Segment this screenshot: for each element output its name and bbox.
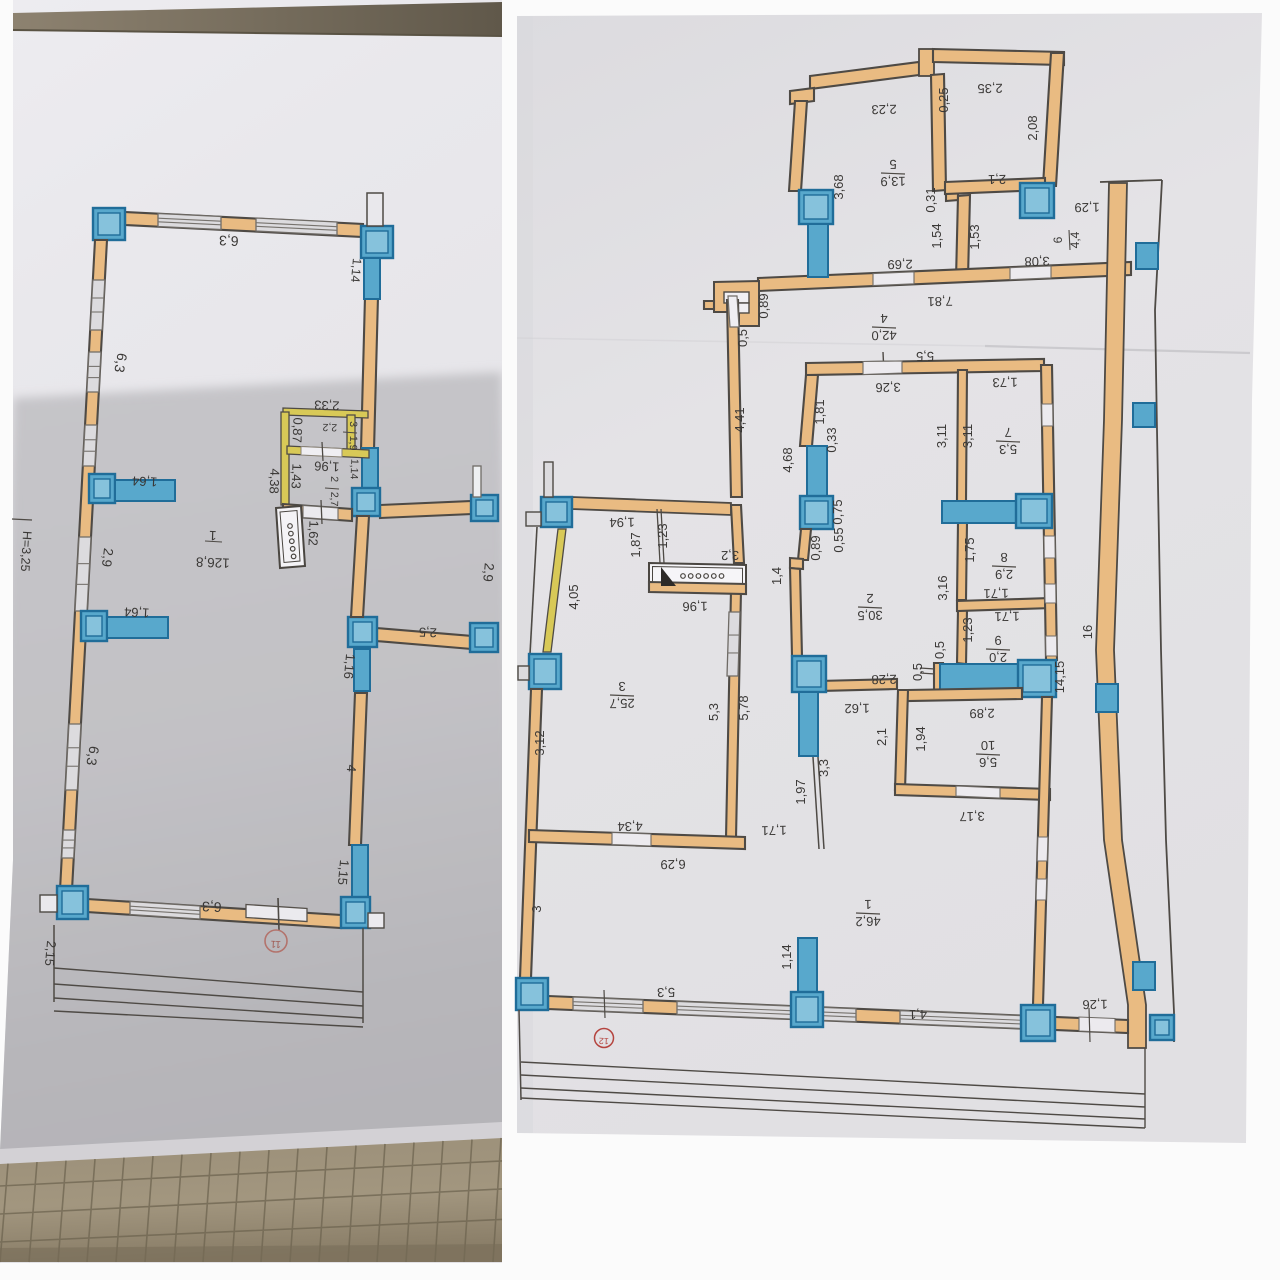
svg-text:2,5: 2,5 bbox=[419, 625, 438, 641]
svg-text:0,89: 0,89 bbox=[808, 535, 823, 560]
svg-text:126,8: 126,8 bbox=[196, 554, 230, 570]
svg-text:2,9: 2,9 bbox=[480, 562, 497, 582]
svg-text:2,69: 2,69 bbox=[887, 257, 913, 272]
svg-text:0,31: 0,31 bbox=[923, 187, 938, 212]
svg-text:2,33: 2,33 bbox=[314, 398, 340, 414]
svg-text:2,1: 2,1 bbox=[988, 172, 1006, 187]
svg-text:1,71: 1,71 bbox=[994, 609, 1020, 624]
svg-text:1,81: 1,81 bbox=[812, 399, 827, 424]
svg-text:1,94: 1,94 bbox=[913, 726, 928, 751]
svg-text:1,15: 1,15 bbox=[335, 859, 352, 886]
svg-text:1: 1 bbox=[864, 897, 871, 912]
svg-text:1,94: 1,94 bbox=[609, 515, 635, 530]
svg-text:4,4: 4,4 bbox=[1068, 231, 1082, 248]
svg-text:1,4: 1,4 bbox=[769, 567, 784, 585]
svg-text:7: 7 bbox=[1004, 425, 1011, 440]
svg-text:5,3: 5,3 bbox=[706, 703, 721, 721]
svg-text:25,7: 25,7 bbox=[609, 696, 635, 711]
svg-text:5,3: 5,3 bbox=[657, 985, 675, 1000]
svg-text:4,68: 4,68 bbox=[780, 447, 795, 472]
svg-text:0,5: 0,5 bbox=[735, 329, 750, 347]
svg-text:5,6: 5,6 bbox=[979, 755, 997, 770]
svg-text:3,11: 3,11 bbox=[934, 424, 949, 448]
svg-text:2,28: 2,28 bbox=[871, 672, 897, 687]
svg-text:2: 2 bbox=[866, 591, 873, 606]
svg-text:3,08: 3,08 bbox=[1024, 254, 1050, 269]
svg-text:1,62: 1,62 bbox=[844, 701, 870, 716]
svg-text:4: 4 bbox=[344, 764, 360, 773]
svg-text:1,9: 1,9 bbox=[347, 436, 360, 451]
svg-text:1,53: 1,53 bbox=[967, 224, 982, 249]
svg-text:7,81: 7,81 bbox=[927, 294, 953, 309]
svg-text:1,54: 1,54 bbox=[929, 223, 944, 248]
svg-text:3,68: 3,68 bbox=[831, 174, 846, 199]
svg-text:1,71: 1,71 bbox=[761, 823, 787, 838]
svg-text:6,29: 6,29 bbox=[660, 857, 686, 872]
svg-text:0,5: 0,5 bbox=[910, 663, 925, 681]
svg-text:0,75: 0,75 bbox=[830, 499, 845, 524]
svg-text:9: 9 bbox=[994, 633, 1001, 648]
svg-text:6: 6 bbox=[1051, 236, 1065, 243]
svg-text:6,3: 6,3 bbox=[219, 233, 239, 250]
svg-text:4,1: 4,1 bbox=[909, 1007, 927, 1022]
svg-text:3,12: 3,12 bbox=[532, 730, 547, 755]
svg-text:1,23: 1,23 bbox=[960, 617, 975, 642]
svg-text:6,3: 6,3 bbox=[202, 899, 222, 916]
svg-text:2: 2 bbox=[328, 476, 340, 482]
svg-text:14,15: 14,15 bbox=[1052, 661, 1067, 694]
svg-text:1,96: 1,96 bbox=[682, 599, 708, 614]
svg-text:1,73: 1,73 bbox=[992, 375, 1018, 390]
svg-text:0,33: 0,33 bbox=[824, 427, 839, 452]
svg-text:1,62: 1,62 bbox=[306, 520, 322, 546]
svg-text:5: 5 bbox=[889, 157, 896, 172]
svg-text:6,3: 6,3 bbox=[111, 352, 130, 374]
svg-text:5,3: 5,3 bbox=[999, 442, 1017, 457]
svg-text:1,14: 1,14 bbox=[348, 258, 364, 284]
svg-text:30,5: 30,5 bbox=[857, 608, 883, 623]
svg-text:1,64: 1,64 bbox=[132, 473, 158, 489]
svg-text:1,23: 1,23 bbox=[655, 523, 670, 548]
svg-text:0,5: 0,5 bbox=[932, 641, 947, 659]
svg-text:1,64: 1,64 bbox=[124, 604, 150, 620]
svg-text:4,38: 4,38 bbox=[267, 468, 283, 494]
svg-text:3,3: 3,3 bbox=[816, 759, 831, 777]
svg-text:3,2: 3,2 bbox=[721, 548, 739, 563]
svg-text:4: 4 bbox=[880, 311, 887, 326]
svg-text:6,3: 6,3 bbox=[83, 745, 102, 767]
svg-text:2,08: 2,08 bbox=[1025, 115, 1040, 140]
svg-text:8: 8 bbox=[1000, 550, 1007, 565]
svg-text:4,05: 4,05 bbox=[566, 584, 581, 609]
svg-text:1,14: 1,14 bbox=[348, 459, 361, 480]
svg-text:1,43: 1,43 bbox=[289, 463, 305, 489]
svg-text:0,55: 0,55 bbox=[831, 527, 846, 552]
svg-text:1,16: 1,16 bbox=[341, 653, 358, 680]
svg-text:11: 11 bbox=[270, 938, 281, 950]
svg-text:0,87: 0,87 bbox=[290, 417, 306, 443]
svg-text:2,15: 2,15 bbox=[42, 940, 59, 967]
svg-text:1,97: 1,97 bbox=[793, 779, 808, 804]
svg-text:4,34: 4,34 bbox=[617, 819, 643, 834]
svg-text:5,78: 5,78 bbox=[736, 695, 751, 720]
svg-text:13,9: 13,9 bbox=[880, 174, 906, 189]
svg-text:3,11: 3,11 bbox=[960, 424, 975, 448]
svg-text:2,1: 2,1 bbox=[874, 728, 889, 746]
svg-text:3: 3 bbox=[347, 421, 359, 427]
svg-text:3: 3 bbox=[529, 905, 544, 912]
svg-text:3,26: 3,26 bbox=[875, 380, 901, 395]
svg-text:2,9: 2,9 bbox=[99, 547, 116, 567]
svg-text:1,29: 1,29 bbox=[1074, 200, 1100, 215]
svg-text:2,7: 2,7 bbox=[328, 492, 341, 507]
svg-text:2,23: 2,23 bbox=[871, 102, 897, 117]
svg-text:1,87: 1,87 bbox=[628, 532, 643, 557]
svg-text:1,14: 1,14 bbox=[779, 944, 794, 969]
svg-text:2,2: 2,2 bbox=[322, 421, 337, 434]
svg-text:3,17: 3,17 bbox=[959, 809, 985, 824]
svg-text:0,89: 0,89 bbox=[756, 293, 771, 318]
svg-text:46,2: 46,2 bbox=[855, 914, 881, 929]
svg-text:3,16: 3,16 bbox=[935, 575, 950, 600]
svg-text:3: 3 bbox=[618, 679, 625, 694]
svg-text:0,25: 0,25 bbox=[936, 87, 951, 112]
svg-text:1,75: 1,75 bbox=[962, 537, 977, 562]
svg-text:1,71: 1,71 bbox=[983, 586, 1009, 601]
svg-text:H=3,25: H=3,25 bbox=[18, 531, 34, 572]
svg-text:16: 16 bbox=[1080, 625, 1095, 639]
svg-text:1,26: 1,26 bbox=[1082, 997, 1108, 1012]
svg-text:12: 12 bbox=[599, 1036, 610, 1047]
svg-text:4,41: 4,41 bbox=[732, 407, 747, 432]
svg-text:10: 10 bbox=[981, 738, 996, 753]
svg-text:2,35: 2,35 bbox=[977, 81, 1003, 96]
svg-text:2,9: 2,9 bbox=[995, 567, 1013, 582]
svg-text:1,96: 1,96 bbox=[314, 459, 340, 475]
svg-text:5,5: 5,5 bbox=[916, 349, 934, 364]
svg-text:2,89: 2,89 bbox=[969, 706, 995, 721]
svg-text:2,0: 2,0 bbox=[989, 650, 1007, 665]
svg-text:42,0: 42,0 bbox=[871, 328, 897, 343]
